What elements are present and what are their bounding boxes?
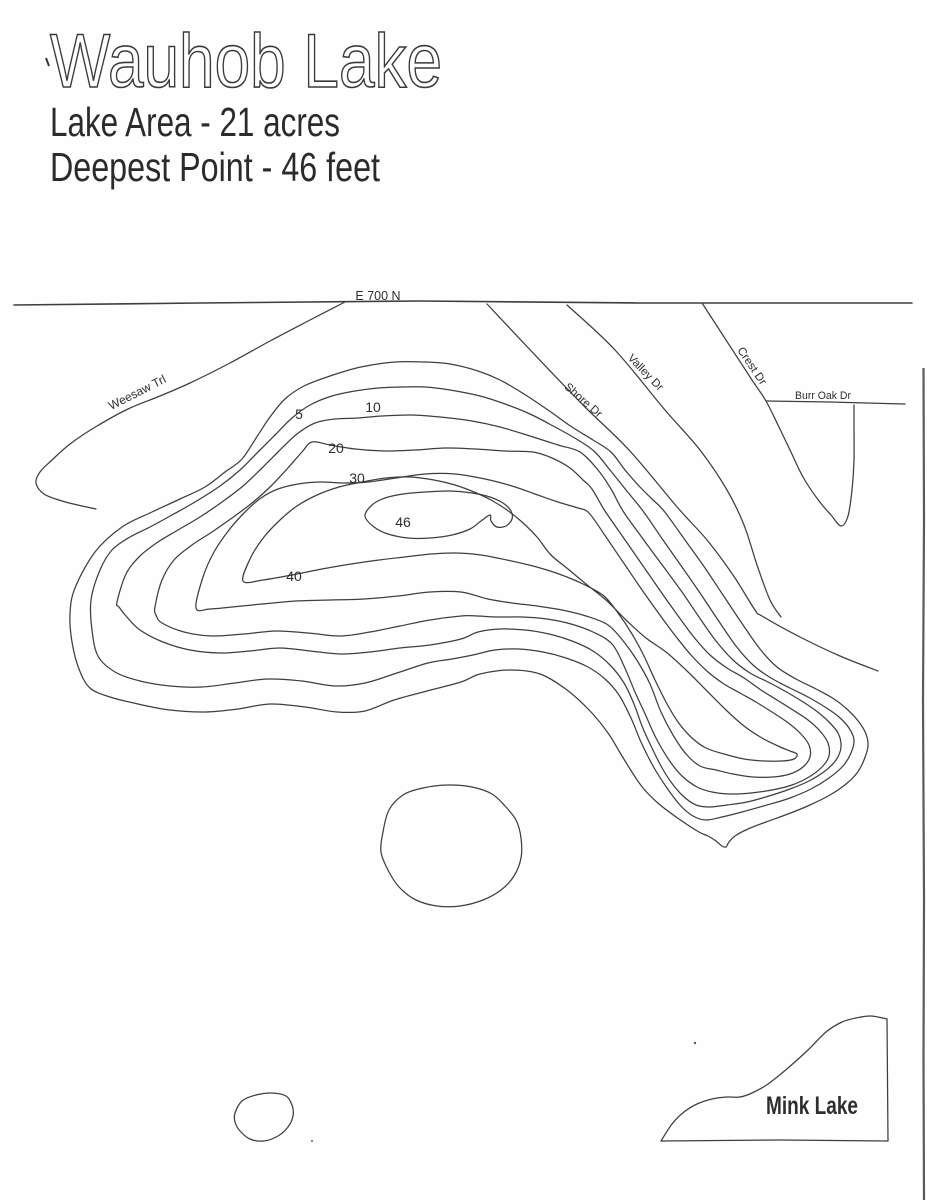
svg-text:40: 40 bbox=[286, 568, 302, 584]
svg-text:30: 30 bbox=[349, 470, 365, 486]
svg-text:Crest Dr: Crest Dr bbox=[735, 345, 769, 387]
svg-text:Burr Oak Dr: Burr Oak Dr bbox=[795, 390, 851, 402]
svg-text:46: 46 bbox=[395, 514, 411, 530]
svg-text:Weesaw Trl: Weesaw Trl bbox=[106, 372, 168, 413]
svg-text:Deepest Point - 46 feet: Deepest Point - 46 feet bbox=[50, 144, 380, 190]
svg-text:Wauhob Lake: Wauhob Lake bbox=[50, 19, 442, 104]
svg-text:Mink Lake: Mink Lake bbox=[766, 1092, 858, 1120]
svg-text:5: 5 bbox=[295, 406, 303, 422]
svg-text:Shore Dr: Shore Dr bbox=[562, 381, 605, 420]
svg-text:Valley Dr: Valley Dr bbox=[625, 352, 666, 393]
svg-text:20: 20 bbox=[328, 440, 344, 456]
svg-text:10: 10 bbox=[365, 399, 381, 415]
svg-text:Lake Area - 21 acres: Lake Area - 21 acres bbox=[50, 99, 340, 145]
svg-text:E 700 N: E 700 N bbox=[355, 289, 400, 303]
